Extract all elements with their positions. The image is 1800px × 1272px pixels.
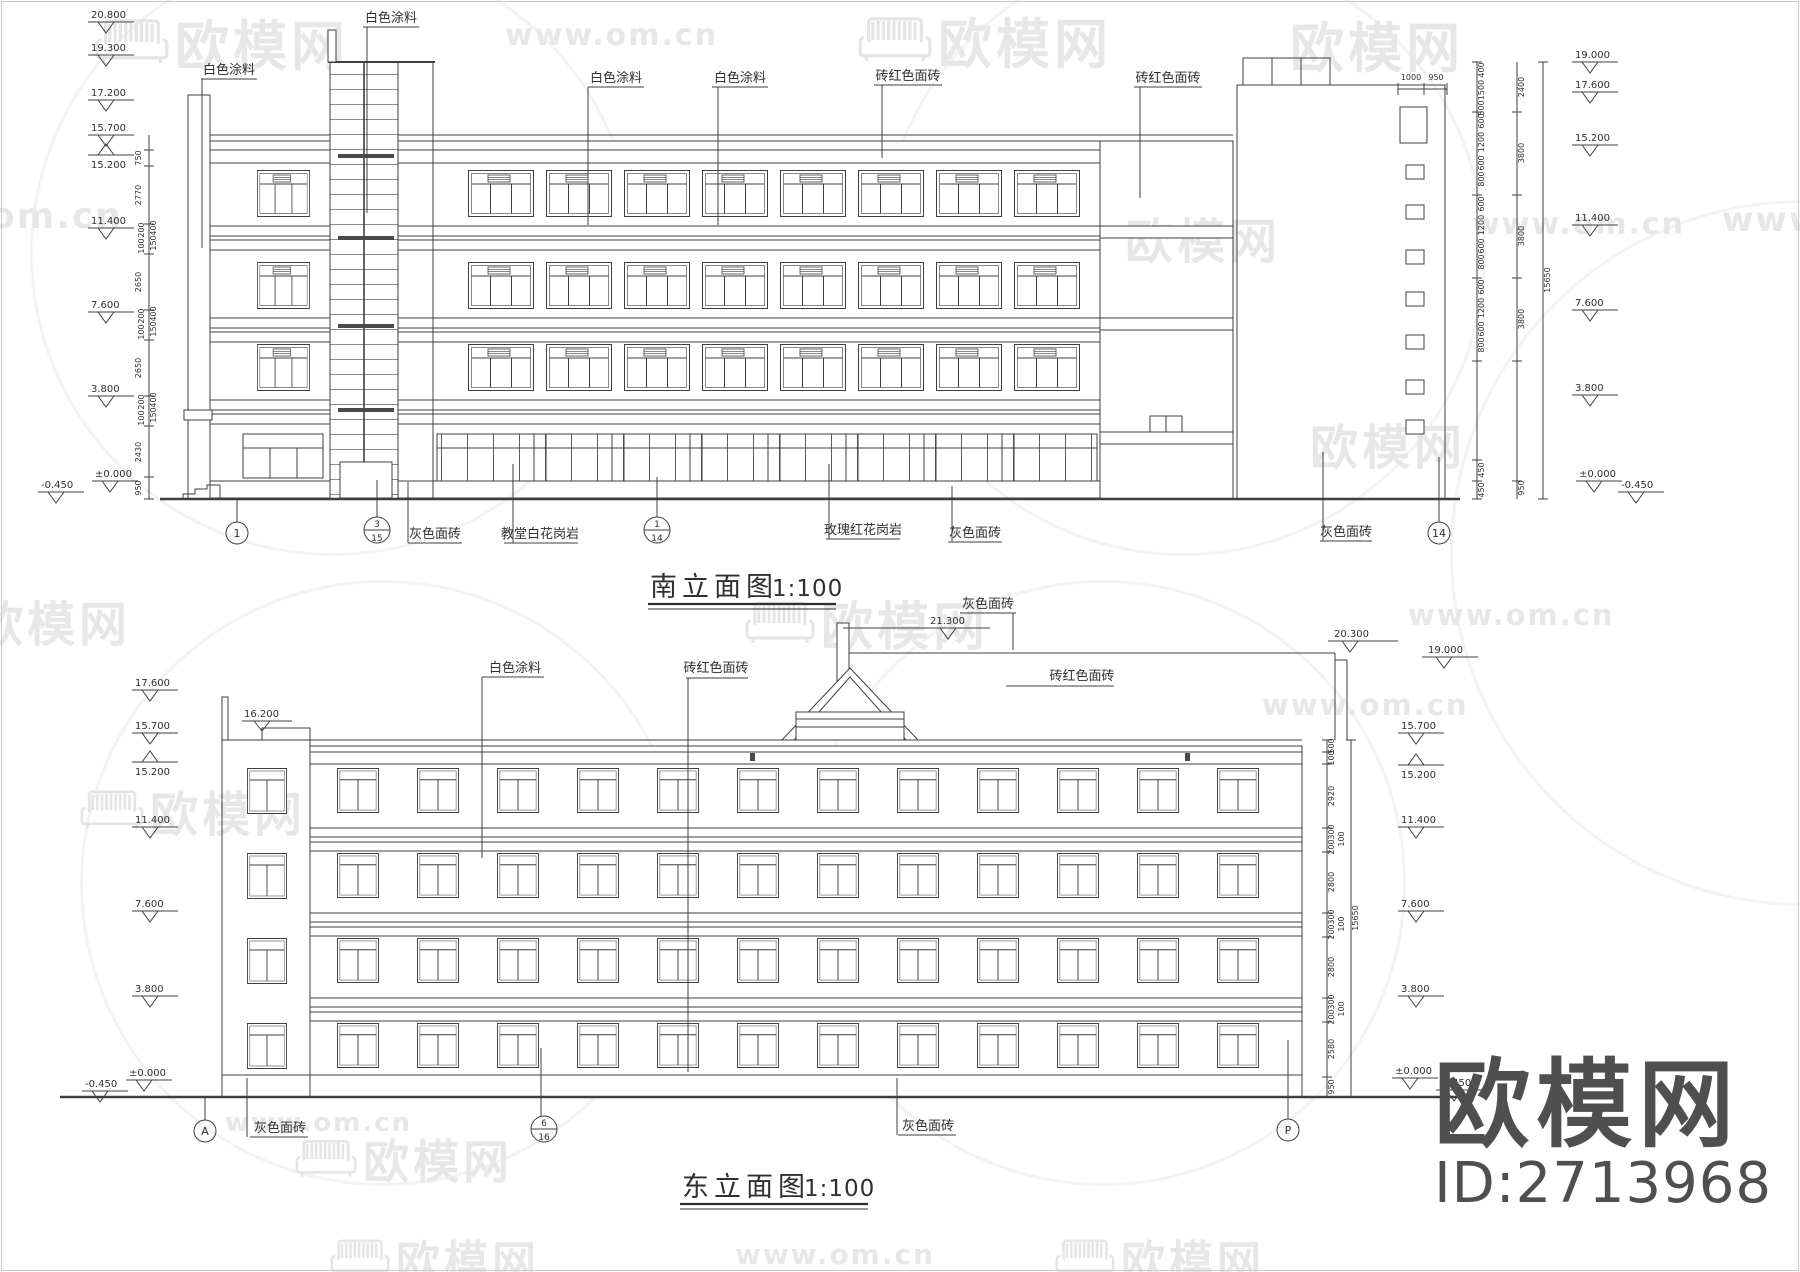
svg-text:400: 400 (149, 220, 158, 235)
elev-value: 19.000 (1428, 645, 1463, 656)
south-storefront (437, 434, 1097, 481)
east-left-tower (222, 697, 310, 1097)
cad-elevation-sheet: 欧模网 www.om.cn 欧模网 欧模网 om.cn 欧模网 欧模网 www.… (0, 0, 1800, 1272)
svg-text:15.700: 15.700 (91, 123, 126, 134)
svg-text:200: 200 (1327, 924, 1336, 939)
svg-text:15.700: 15.700 (135, 721, 170, 732)
east-title: 东立面图 1:100 (680, 1172, 875, 1209)
svg-text:2920: 2920 (1327, 786, 1336, 806)
site-watermark-id: ID:2713968 (1434, 1155, 1772, 1212)
svg-text:500: 500 (1477, 100, 1486, 115)
svg-text:400: 400 (1477, 62, 1486, 77)
svg-text:450: 450 (1477, 462, 1486, 477)
south-elevation-drawing: 白色涂料 白色涂料 白色涂料 白色涂料 砖红色面砖 砖红色面砖 灰色面砖 教堂白… (38, 10, 1664, 609)
svg-text:100: 100 (137, 238, 146, 253)
material-label: 灰色面砖 (962, 596, 1014, 612)
svg-text:3.800: 3.800 (135, 984, 164, 995)
south-left-wall (188, 95, 210, 499)
svg-text:±0.000: ±0.000 (129, 1068, 166, 1079)
svg-text:11.400: 11.400 (1575, 213, 1610, 224)
south-title: 南立面图 1:100 (648, 572, 843, 609)
svg-text:150: 150 (149, 235, 158, 250)
svg-text:100: 100 (137, 410, 146, 425)
svg-text:17.600: 17.600 (1575, 80, 1610, 91)
svg-text:200: 200 (137, 308, 146, 323)
svg-text:-0.450: -0.450 (85, 1079, 117, 1090)
svg-text:300: 300 (1327, 909, 1336, 924)
svg-text:2800: 2800 (1327, 872, 1336, 892)
svg-text:3.800: 3.800 (1401, 984, 1430, 995)
svg-text:200: 200 (1327, 1009, 1336, 1024)
grid-bubble: P (1285, 1124, 1292, 1137)
svg-text:800: 800 (1477, 254, 1486, 269)
svg-text:200: 200 (137, 394, 146, 409)
svg-text:15650: 15650 (1351, 905, 1360, 930)
svg-text:1000: 1000 (1401, 73, 1421, 82)
svg-text:800: 800 (1477, 171, 1486, 186)
elev-value: 21.300 (930, 616, 965, 627)
svg-text:±0.000: ±0.000 (1395, 1066, 1432, 1077)
east-dims-right: 500 100 2920 300 100 200 2800 300 100 20… (1322, 738, 1360, 1097)
material-label: 白色涂料 (714, 70, 766, 86)
south-dims-right: 400 1500 500 600 1200 600 800 600 1200 6… (1472, 62, 1552, 499)
east-elevation-drawing: 21.300 20.300 19.000 16.200 灰色面砖 白色涂料 砖红… (60, 596, 1482, 1209)
south-redbrick-section (1100, 141, 1233, 499)
svg-text:7.600: 7.600 (91, 300, 120, 311)
svg-text:2580: 2580 (1327, 1039, 1336, 1059)
svg-text:3800: 3800 (1517, 226, 1526, 246)
svg-text:11.400: 11.400 (135, 815, 170, 826)
svg-text:7.600: 7.600 (1575, 298, 1604, 309)
grid-bubble: 14 (1432, 527, 1446, 540)
svg-text:15.200: 15.200 (135, 767, 170, 778)
svg-text:20.800: 20.800 (91, 10, 126, 21)
material-label: 灰色面砖 (949, 525, 1001, 541)
svg-text:950: 950 (1327, 1079, 1336, 1094)
svg-text:2650: 2650 (134, 272, 143, 292)
svg-text:15650: 15650 (1543, 267, 1552, 292)
east-elev-markers-left: 17.600 15.700 15.200 11.400 7.600 3.800 … (82, 678, 178, 1102)
svg-text:950: 950 (1517, 480, 1526, 495)
svg-text:600: 600 (1477, 279, 1486, 294)
svg-text:100: 100 (1337, 1001, 1346, 1016)
material-label: 白色涂料 (203, 62, 255, 78)
south-canopy (184, 410, 212, 420)
svg-text:-0.450: -0.450 (1621, 480, 1653, 491)
svg-text:2800: 2800 (1327, 957, 1336, 977)
svg-text:3800: 3800 (1517, 309, 1526, 329)
grid-bubble: 1 (654, 520, 660, 530)
svg-text:2770: 2770 (134, 185, 143, 205)
material-label: 砖红色面砖 (683, 660, 748, 676)
svg-text:1200: 1200 (1477, 132, 1486, 152)
svg-text:150: 150 (149, 321, 158, 336)
grid-bubble: 16 (538, 1133, 550, 1143)
drawing-title: 东立面图 (682, 1172, 810, 1203)
site-watermark-brand: 欧模网 (1434, 1057, 1772, 1155)
svg-text:800: 800 (1477, 337, 1486, 352)
material-label: 灰色面砖 (1320, 524, 1372, 540)
svg-text:200: 200 (137, 222, 146, 237)
svg-text:19.000: 19.000 (1575, 50, 1610, 61)
svg-text:15.200: 15.200 (1575, 133, 1610, 144)
svg-text:950: 950 (1428, 73, 1443, 82)
svg-text:3800: 3800 (1517, 143, 1526, 163)
south-elev-markers-right: 19.000 17.600 15.200 11.400 7.600 3.800 … (1572, 50, 1664, 503)
svg-text:±0.000: ±0.000 (95, 469, 132, 480)
south-dims-left: 750 2770 400 200 150 100 2650 400 200 15… (134, 135, 158, 499)
south-right-tower (1237, 58, 1445, 499)
drawing-scale: 1:100 (804, 1176, 875, 1202)
grid-bubble: 6 (541, 1119, 547, 1129)
svg-text:2650: 2650 (134, 358, 143, 378)
svg-text:19.300: 19.300 (91, 43, 126, 54)
svg-text:15.700: 15.700 (1401, 721, 1436, 732)
svg-text:15.200: 15.200 (1401, 770, 1436, 781)
svg-text:17.600: 17.600 (135, 678, 170, 689)
grid-bubble: 1 (234, 527, 241, 540)
south-ground-window (243, 434, 323, 478)
svg-text:600: 600 (1477, 238, 1486, 253)
svg-text:300: 300 (1327, 824, 1336, 839)
svg-text:2400: 2400 (1517, 77, 1526, 97)
roof-railing (1243, 58, 1330, 85)
svg-text:±0.000: ±0.000 (1579, 469, 1616, 480)
elev-value: 16.200 (244, 709, 279, 720)
svg-text:-0.450: -0.450 (41, 480, 73, 491)
svg-text:600: 600 (1477, 113, 1486, 128)
drawing-scale: 1:100 (772, 576, 843, 602)
grid-bubble: 14 (651, 534, 663, 544)
material-label: 砖红色面砖 (875, 68, 940, 84)
svg-text:200: 200 (1327, 839, 1336, 854)
svg-text:1200: 1200 (1477, 298, 1486, 318)
svg-text:400: 400 (149, 392, 158, 407)
site-watermark: 欧模网 ID:2713968 (1434, 1057, 1772, 1212)
south-dims-top: 1000 950 (1398, 73, 1447, 95)
south-elev-markers-left: 20.800 19.300 17.200 15.700 15.200 11.40… (38, 10, 138, 503)
svg-text:300: 300 (1327, 994, 1336, 1009)
east-elev-markers-right: 15.700 15.200 11.400 7.600 3.800 ±0.000 … (1392, 721, 1482, 1101)
svg-text:17.200: 17.200 (91, 88, 126, 99)
svg-text:100: 100 (137, 324, 146, 339)
material-label: 玫瑰红花岗岩 (824, 522, 902, 538)
svg-text:100: 100 (1337, 916, 1346, 931)
svg-text:600: 600 (1477, 155, 1486, 170)
svg-text:1500: 1500 (1477, 80, 1486, 100)
material-label: 灰色面砖 (254, 1120, 306, 1136)
elev-value: 20.300 (1334, 629, 1369, 640)
material-label: 砖红色面砖 (1135, 70, 1200, 86)
material-label: 白色涂料 (590, 70, 642, 86)
svg-text:600: 600 (1477, 321, 1486, 336)
svg-text:750: 750 (134, 150, 143, 165)
east-gable (782, 668, 918, 740)
svg-text:15.200: 15.200 (91, 160, 126, 171)
svg-text:100: 100 (1337, 831, 1346, 846)
svg-text:3.800: 3.800 (1575, 383, 1604, 394)
svg-text:2430: 2430 (134, 442, 143, 462)
svg-text:100: 100 (1327, 750, 1336, 765)
svg-text:7.600: 7.600 (1401, 899, 1430, 910)
material-label: 白色涂料 (489, 660, 541, 676)
material-label: 灰色面砖 (409, 526, 461, 542)
east-back-wall (849, 653, 1347, 740)
material-label: 砖红色面砖 (1049, 668, 1114, 684)
grid-bubble: 15 (371, 534, 382, 544)
svg-text:7.600: 7.600 (135, 899, 164, 910)
svg-text:950: 950 (134, 480, 143, 495)
grid-bubble: A (201, 1125, 209, 1138)
svg-text:3.800: 3.800 (91, 384, 120, 395)
drawing-title: 南立面图 (650, 572, 778, 603)
grid-bubble: 3 (374, 520, 380, 530)
svg-text:450: 450 (1477, 482, 1486, 497)
svg-text:1200: 1200 (1477, 215, 1486, 235)
south-tower-door (340, 462, 392, 498)
svg-text:150: 150 (149, 407, 158, 422)
svg-text:600: 600 (1477, 196, 1486, 211)
svg-text:400: 400 (149, 306, 158, 321)
material-label: 白色涂料 (365, 10, 417, 26)
east-parapet (310, 740, 1302, 746)
material-label: 灰色面砖 (902, 1118, 954, 1134)
svg-text:11.400: 11.400 (91, 216, 126, 227)
svg-text:11.400: 11.400 (1401, 815, 1436, 826)
